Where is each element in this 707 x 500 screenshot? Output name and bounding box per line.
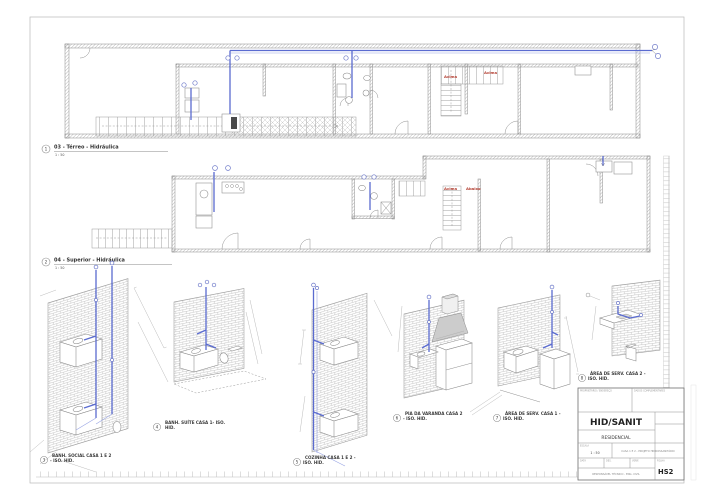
tb-checked-label: VERIF. [632,460,639,463]
title-block: PROPRIETÁRIO / ENDEREÇO DADOS COMPLEMENT… [578,388,684,480]
view-scale-1: 1 : 50 [55,153,65,157]
view-label-5b: ISO. HID. [303,460,324,465]
right-ruler [664,156,670,388]
view-title-8: 8 ÁREA DE SERV. CASA 2 - ISO. HID. [578,371,645,382]
view-label-3b: - ISO. HID. [50,458,74,463]
sheet-canvas: Acima Acima 1 03 - Térreo - Hidráulica 1… [0,0,707,500]
view-label-2: 04 - Superior - Hidráulica [54,257,125,264]
view-title-7: 7 ÁREA DE SERV. CASA 1 - ISO. HID. [493,411,560,422]
tb-project-name: RESIDENCIAL [601,435,631,441]
view-scale-2: 1 : 50 [55,266,65,270]
view-label-6b: - ISO. HID. [403,416,427,421]
tb-owner-label: PROPRIETÁRIO / ENDEREÇO [580,390,612,393]
view-number-5: 5 [296,460,299,465]
view-title-3: 3 BANH. SOCIAL CASA 1 E 2 - ISO. HID. [40,453,111,464]
iso-detail-banh-suite [174,280,266,393]
tb-date-label: DATA [580,460,586,463]
view-title-4: 4 BANH. SUÍTE CASA 1- ISO. HID. [153,420,225,431]
right-edge-ticks [691,385,696,480]
view-label-8b: ISO. HID. [588,376,609,381]
view-label-7b: ISO. HID. [503,416,524,421]
view-number-6: 6 [396,416,399,421]
tb-scale-value: 1 : 50 [590,451,599,455]
tb-sheet-title: HID/SANIT [590,418,643,428]
tb-scale-label: ESCALA [580,445,589,448]
tb-sheet-number: HS2 [658,468,674,476]
drawing-sheet: Acima Acima 1 03 - Térreo - Hidráulica 1… [0,0,707,500]
view-title-superior: 2 04 - Superior - Hidráulica 1 : 50 [42,257,172,271]
view-number-7: 7 [496,416,499,421]
terreo-plan: Acima Acima [65,44,661,138]
iso-detail-cozinha [298,283,392,466]
view-label-1: 03 - Térreo - Hidráulica [54,144,119,151]
tb-drawn-label: DES. [606,460,612,463]
iso-detail-servico1 [470,285,579,415]
superior-stair-left [92,229,172,248]
superior-abaixo: Abaixo [466,186,481,191]
iso-detail-banh-social [30,261,168,472]
superior-acima: Acima [444,186,457,191]
terreo-acima-2: Acima [484,70,497,75]
view-number-3: 3 [43,458,46,463]
tb-data-label: DADOS COMPLEMENTARES [634,390,666,393]
view-number-8: 8 [581,376,584,381]
superior-plan: Acima Abaixo [92,156,650,252]
iso-detail-varanda [398,294,472,398]
view-number-2: 2 [45,260,48,265]
view-number-4: 4 [156,425,159,430]
iso-detail-servico2 [586,280,660,361]
view-number-1: 1 [45,147,48,152]
terreo-pipes [182,44,661,120]
view-title-5: 5 COZINHA CASA 1 E 2 - ISO. HID. [293,455,356,466]
view-label-4b: HID. [165,425,175,430]
terreo-acima-1: Acima [444,74,457,79]
view-title-6: 6 PIA DA VARANDA CASA 2 - ISO. HID. [393,411,462,422]
view-title-terreo: 1 03 - Térreo - Hidráulica 1 : 50 [42,144,168,158]
iso7-washer [540,349,570,389]
tb-sheet-label: FOLHA [657,460,665,463]
